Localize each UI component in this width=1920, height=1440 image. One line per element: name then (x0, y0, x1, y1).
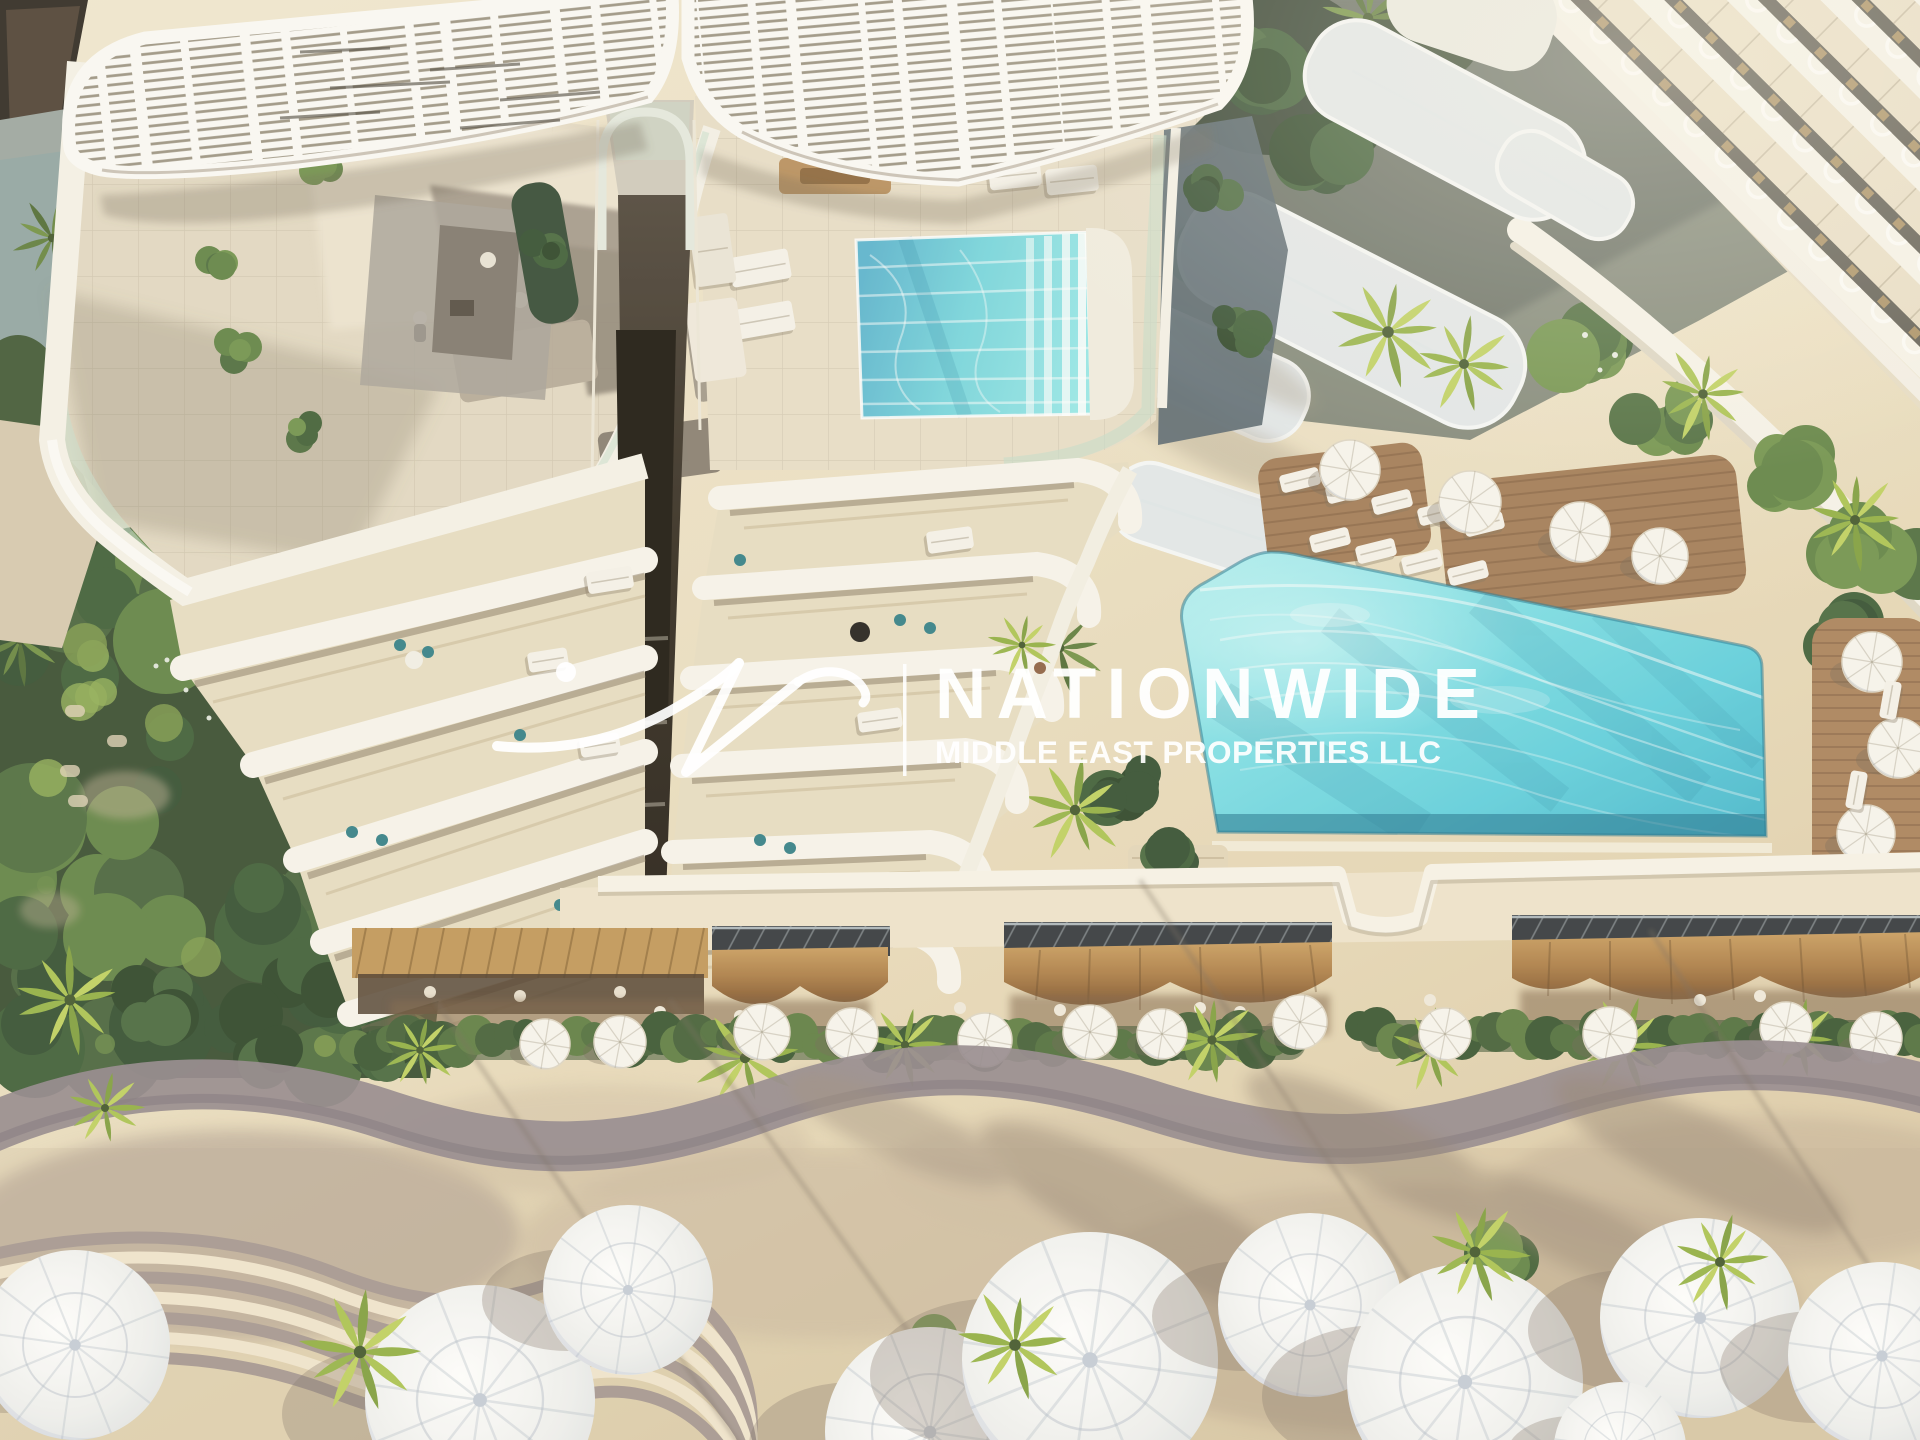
svg-text:NATIONWIDE: NATIONWIDE (935, 655, 1480, 734)
svg-text:MIDDLE EAST PROPERTIES LLC: MIDDLE EAST PROPERTIES LLC (935, 734, 1441, 770)
